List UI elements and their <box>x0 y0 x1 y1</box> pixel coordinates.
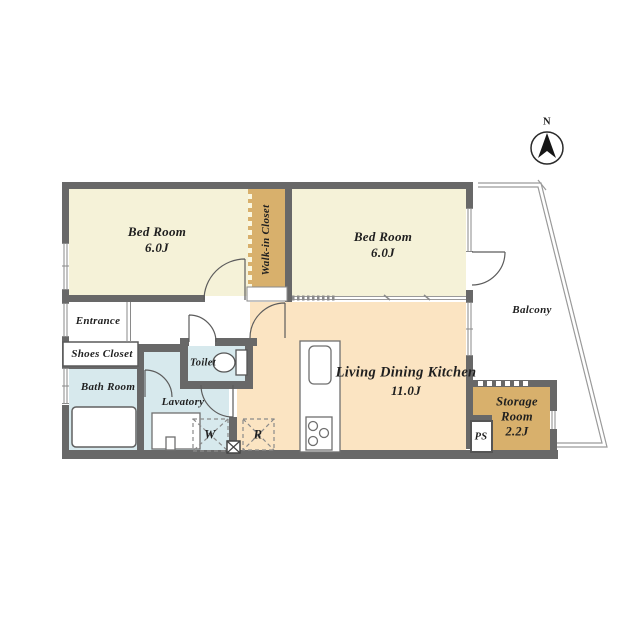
lavatory-label: Lavatory <box>162 396 205 408</box>
window-storage <box>550 411 557 429</box>
toilet-door <box>189 315 216 342</box>
bedroom2-name-label: Bed Room <box>354 229 412 245</box>
shoes-closet-label: Shoes Closet <box>71 348 132 360</box>
storage-size-label: 2.2J <box>505 425 528 440</box>
wic-bottom-box <box>247 287 287 301</box>
toilet-door-opening <box>189 338 215 346</box>
floor-plan-canvas: Bed Room 6.0J Walk-in Closet Bed Room 6.… <box>0 0 640 640</box>
stove-burner <box>320 429 329 438</box>
wall-top <box>62 182 473 189</box>
bedroom1-name-label: Bed Room <box>128 224 186 240</box>
wall-toilet-bottom <box>180 381 253 389</box>
bathtub-icon <box>72 407 136 447</box>
compass-north-label: N <box>543 117 551 128</box>
stove-burner <box>309 422 318 431</box>
wall-wic-right <box>285 189 292 302</box>
vanity-sink-handle <box>166 437 175 450</box>
window-bedroom2 <box>466 208 473 252</box>
stove-burner <box>309 437 318 446</box>
compass-icon <box>531 132 563 164</box>
kitchen-sink <box>309 346 331 384</box>
entrance-step-line <box>127 302 131 342</box>
toilet-label: Toilet <box>190 358 216 369</box>
wall-lavatory-ldk <box>229 417 237 443</box>
bathroom-label: Bath Room <box>81 381 135 393</box>
entrance-label: Entrance <box>76 315 121 327</box>
ldk-name-label: Living Dining Kitchen <box>336 365 477 382</box>
duct-box <box>227 441 240 453</box>
ldk-size-label: 11.0J <box>391 383 421 399</box>
bedroom2-size-label: 6.0J <box>371 245 395 261</box>
ps-label: PS <box>475 432 488 443</box>
refrigerator-label: R <box>254 428 263 443</box>
wall-hall-lavatory <box>137 344 186 352</box>
balcony-door <box>472 252 505 285</box>
wall-bedroom1-bottom <box>62 295 205 302</box>
balcony-label: Balcony <box>512 304 551 316</box>
washer-label: W <box>204 428 215 443</box>
bedroom1-size-label: 6.0J <box>145 240 169 256</box>
entrance-door-opening <box>62 303 69 337</box>
toilet-bowl-icon <box>213 353 235 372</box>
storage-name-line1-label: Storage <box>496 395 538 410</box>
storage-name-line2-label: Room <box>501 410 533 425</box>
balcony-door-opening <box>466 252 473 290</box>
toilet-tank-icon <box>236 350 247 375</box>
walk-in-closet-label: Walk-in Closet <box>260 205 272 276</box>
